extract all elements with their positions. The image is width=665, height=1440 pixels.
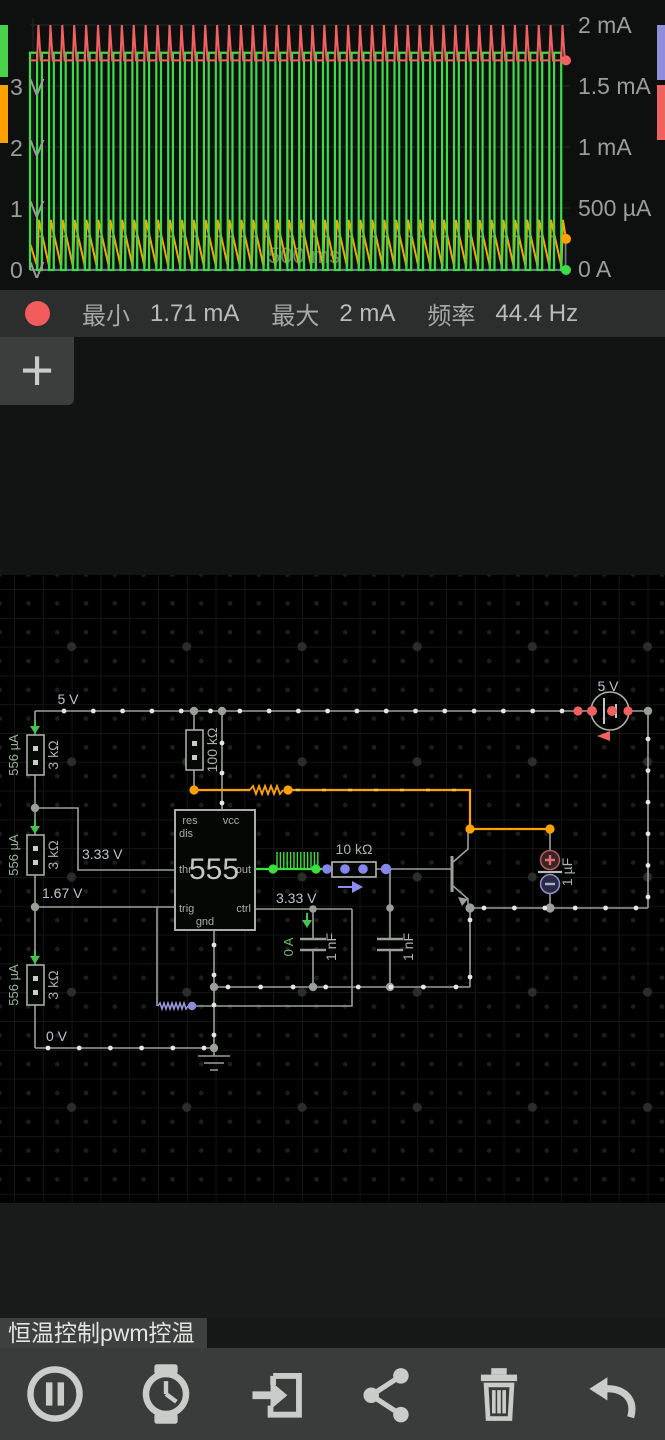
share-icon [357, 1363, 419, 1425]
title-row: 恒温控制pwm控温 [0, 1318, 665, 1348]
transistor-npn[interactable] [452, 831, 468, 908]
min-value: 1.71 mA [150, 300, 239, 328]
oscilloscope-panel[interactable]: 500 ms3 V2 V1 V0 V2 mA1.5 mA1 mA500 µA0 … [0, 0, 665, 290]
channel-tab-blue[interactable] [657, 25, 665, 80]
timer-555[interactable]: res vcc dis thr trig out ctrl gnd 555 [175, 810, 255, 930]
right-axis-tick: 2 mA [578, 12, 632, 38]
everycircuit-app: 500 ms3 V2 V1 V0 V2 mA1.5 mA1 mA500 µA0 … [0, 0, 665, 1440]
undo-button[interactable] [570, 1359, 650, 1429]
label-node_0: 0 V [46, 1028, 68, 1044]
bottom-toolbar [0, 1348, 665, 1440]
circuit-title: 恒温控制pwm控温 [0, 1318, 207, 1348]
max-value: 2 mA [339, 300, 395, 328]
svg-text:555: 555 [189, 853, 239, 886]
svg-text:ctrl: ctrl [236, 903, 251, 915]
label-supply_top: 5 V [57, 691, 79, 707]
left-axis-tick: 2 V [10, 135, 45, 161]
add-probe-button[interactable]: + [0, 337, 74, 405]
active-trace-marker[interactable] [25, 301, 50, 326]
label-node_333a: 3.33 V [82, 846, 123, 862]
resistor-r3[interactable] [27, 965, 44, 1005]
left-axis-tick: 0 V [10, 257, 45, 283]
label-cap1_v: 1 nF [323, 933, 339, 961]
label-r5_v: 10 kΩ [336, 841, 373, 857]
scope-workspace: + [0, 337, 665, 575]
svg-text:trig: trig [179, 903, 194, 915]
min-label: 最小 [82, 296, 130, 331]
measurement-bar: 最小 1.71 mA 最大 2 mA 频率 44.4 Hz [0, 290, 665, 337]
label-node_167: 1.67 V [42, 885, 83, 901]
pause-icon [24, 1363, 86, 1425]
current-arrows [30, 720, 312, 964]
right-axis-tick: 1 mA [578, 134, 632, 160]
base-current-arrow [338, 881, 363, 893]
channel-tab-green[interactable] [0, 25, 8, 77]
label-cap2_v: 1 nF [400, 933, 416, 961]
import-button[interactable] [237, 1359, 317, 1429]
resistor-r2[interactable] [27, 835, 44, 875]
trig-current-comb [158, 1003, 188, 1009]
label-r1_v: 3 kΩ [45, 740, 61, 769]
channel-tab-red[interactable] [657, 85, 665, 140]
svg-text:dis: dis [179, 828, 194, 840]
label-r2_v: 3 kΩ [45, 840, 61, 869]
max-label: 最大 [271, 296, 319, 331]
right-axis-tick: 0 A [578, 256, 612, 282]
scope-plot[interactable]: 500 ms3 V2 V1 V0 V2 mA1.5 mA1 mA500 µA0 … [0, 0, 665, 290]
channel-tab-orange[interactable] [0, 85, 8, 143]
trash-icon [468, 1363, 530, 1425]
right-axis-tick: 500 µA [578, 195, 652, 221]
label-r3_i: 556 µA [6, 964, 21, 1006]
svg-text:vcc: vcc [223, 815, 240, 827]
svg-text:gnd: gnd [196, 916, 214, 928]
folder-import-icon [246, 1363, 308, 1425]
label-node_333b: 3.33 V [276, 890, 317, 906]
voltage-source-5v[interactable] [591, 692, 629, 741]
pause-button[interactable] [15, 1359, 95, 1429]
right-axis-tick: 1.5 mA [578, 73, 652, 99]
label-supply_src: 5 V [597, 678, 619, 694]
resistor-r1[interactable] [27, 735, 44, 775]
resistor-100k[interactable] [186, 730, 203, 770]
out-current-comb [255, 852, 322, 869]
left-axis-tick: 3 V [10, 74, 45, 100]
delete-button[interactable] [459, 1359, 539, 1429]
share-button[interactable] [348, 1359, 428, 1429]
source-current-arrow [597, 731, 610, 741]
canvas-margin [0, 1203, 665, 1318]
svg-text:res: res [182, 815, 198, 827]
circuit-canvas[interactable]: res vcc dis thr trig out ctrl gnd 555 [0, 575, 665, 1203]
freq-label: 频率 [427, 296, 475, 331]
undo-icon [579, 1363, 641, 1425]
label-r4_v: 100 kΩ [204, 728, 220, 773]
label-r1_i: 556 µA [6, 734, 21, 776]
freq-value: 44.4 Hz [495, 300, 578, 328]
label-r3_v: 3 kΩ [45, 970, 61, 999]
left-axis-tick: 1 V [10, 196, 45, 222]
label-cap1_i: 0 A [281, 937, 296, 956]
history-button[interactable] [126, 1359, 206, 1429]
clock-icon [135, 1363, 197, 1425]
label-r2_i: 556 µA [6, 834, 21, 876]
label-cap3_v: 1 µF [559, 858, 575, 886]
resistor-10k[interactable] [332, 862, 376, 877]
